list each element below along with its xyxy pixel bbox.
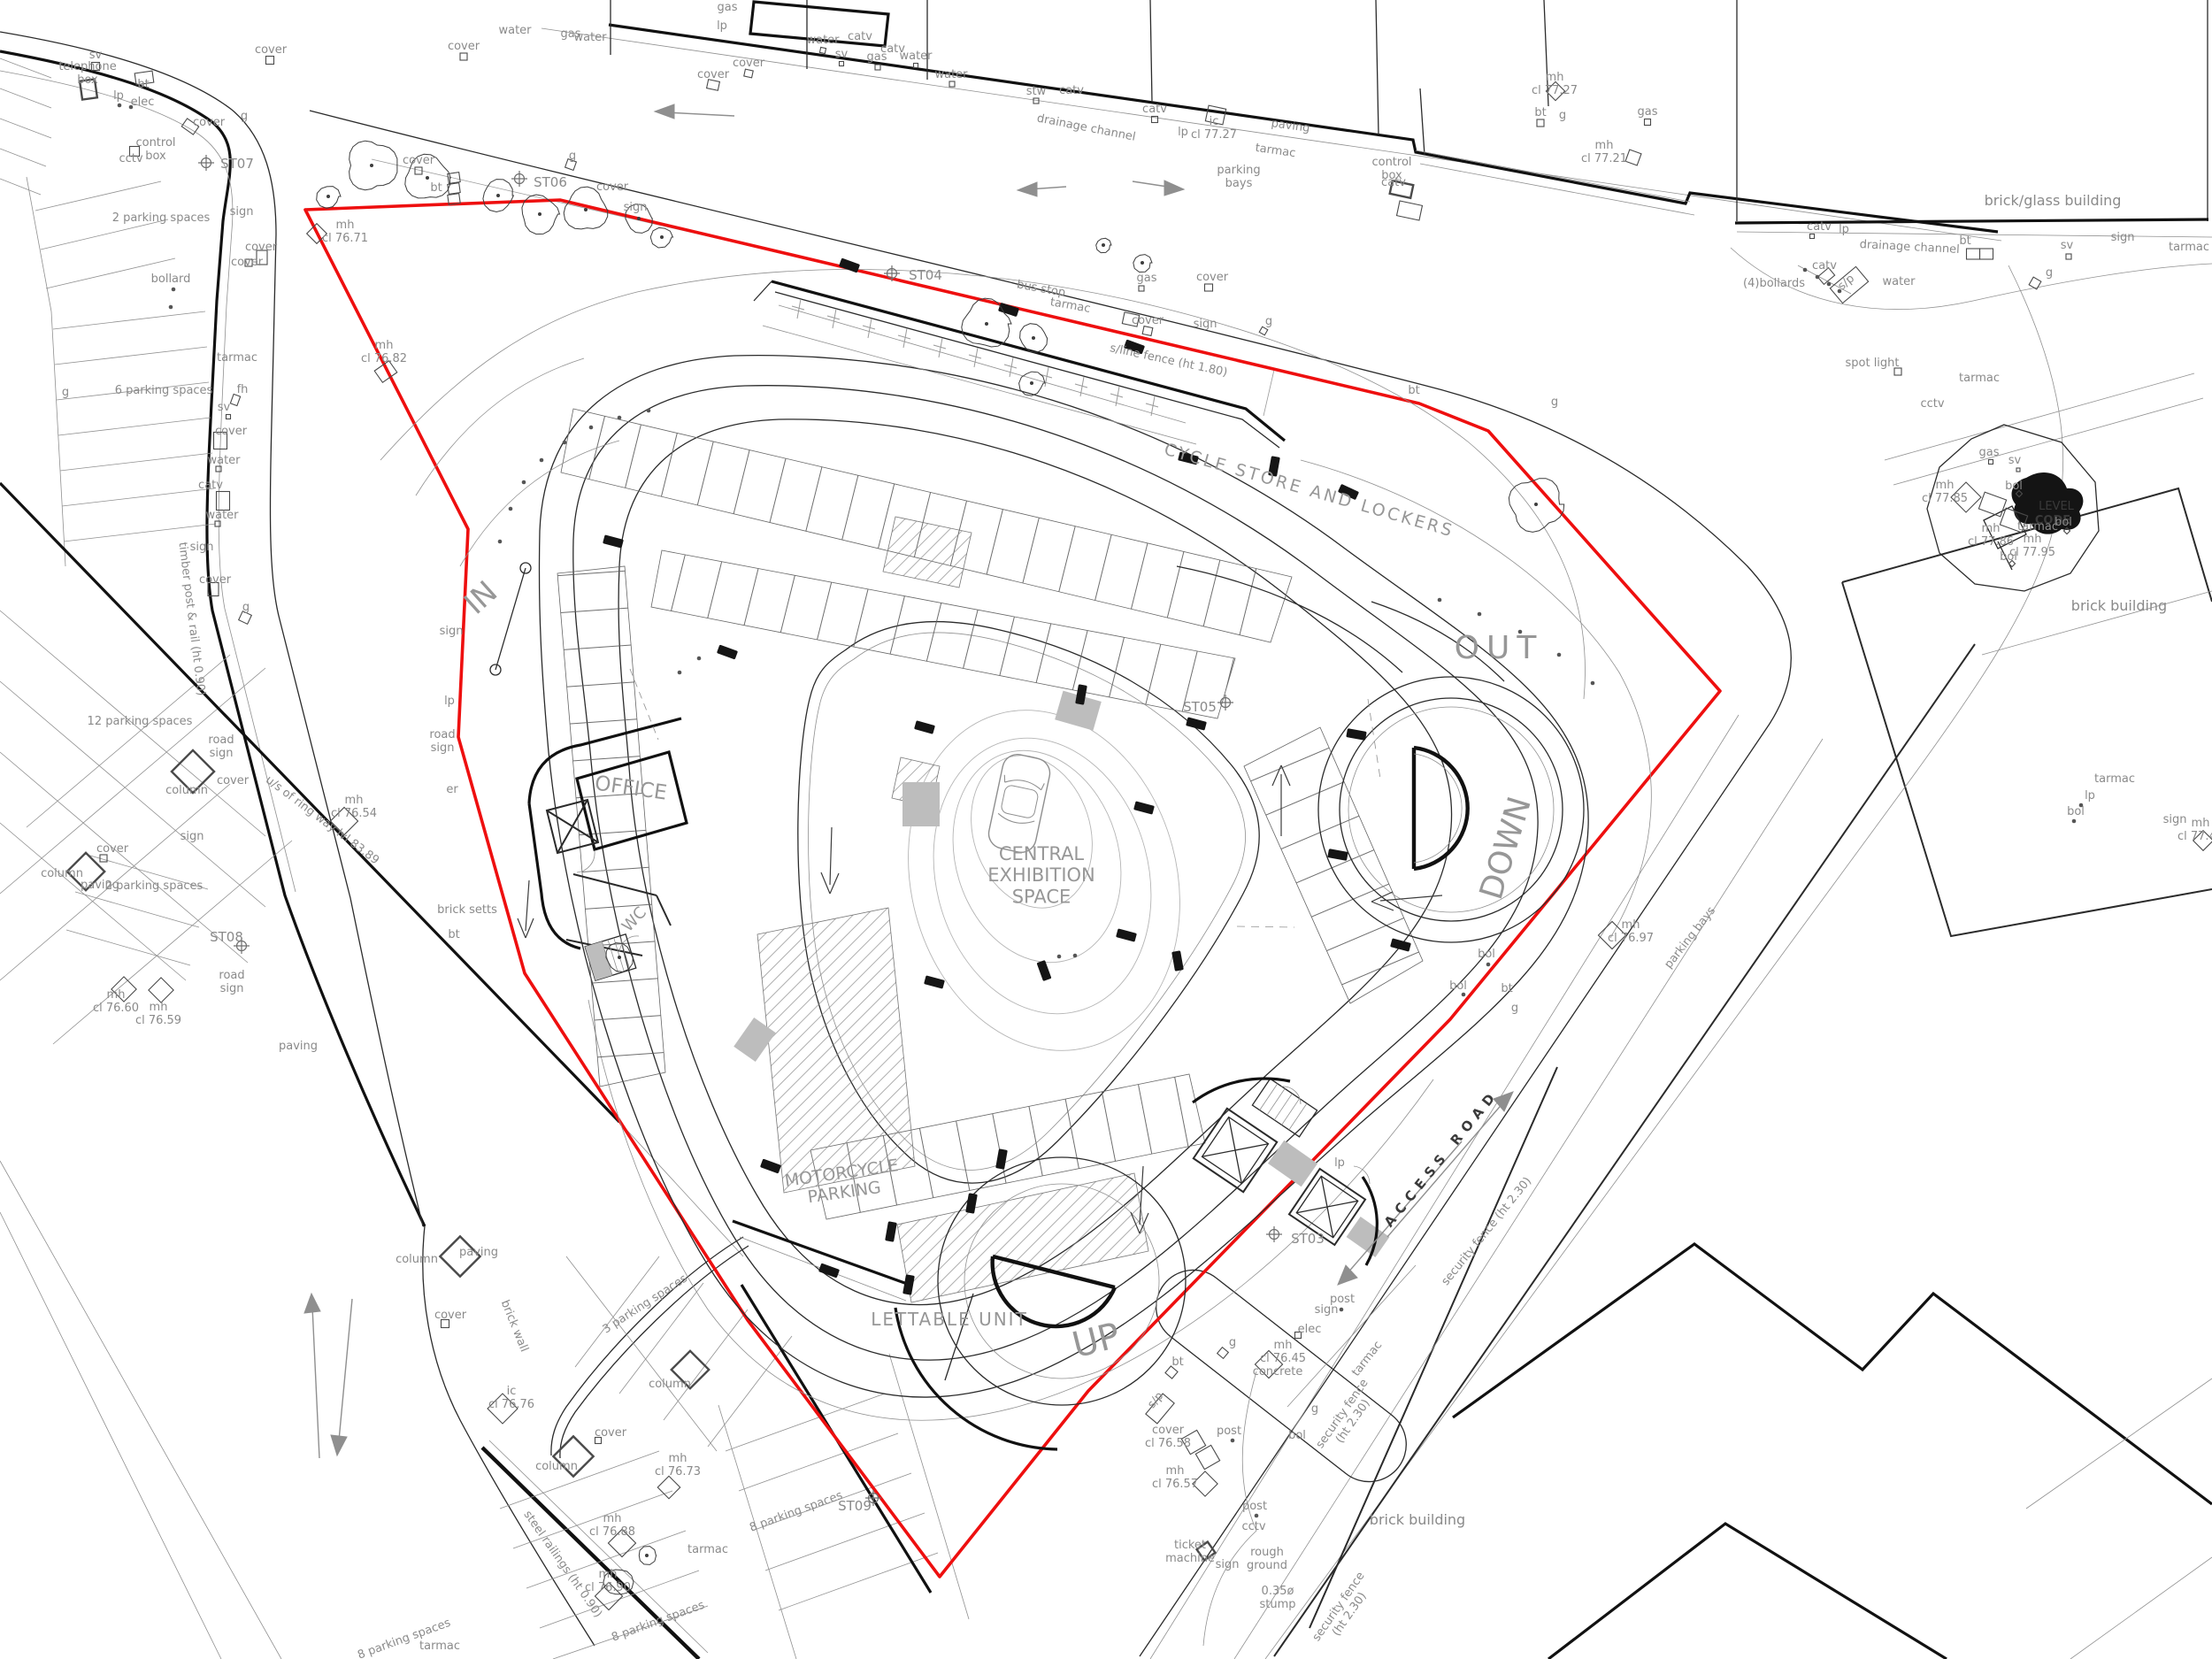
survey-dot — [1827, 282, 1832, 287]
map-label-bol: bol — [2005, 480, 2023, 493]
map-label-water: water — [934, 68, 968, 81]
utility-box — [1810, 234, 1815, 239]
survey-station-st06: ST06 — [511, 171, 567, 190]
map-label-access-road: ACCESS ROAD — [1381, 1086, 1502, 1230]
map-label-paving: paving — [1271, 117, 1311, 135]
site-plan-page: ST03ST04ST05ST06ST07ST08ST09 svtelephone… — [0, 0, 2212, 1659]
utility-box — [744, 69, 753, 78]
map-label-mh-cl-76-60: mhcl 76.60 — [93, 988, 139, 1015]
map-label-bt: bt — [137, 78, 149, 91]
map-label-brick-building: brick building — [1370, 1511, 1465, 1528]
map-label-lp: lp — [1334, 1156, 1345, 1170]
map-label-cover: cover — [231, 256, 264, 269]
survey-dot — [498, 540, 503, 544]
labels-layer: svtelephoneboxbtlpeleccovercovergcontrol… — [41, 1, 2212, 1659]
map-label-cover: cover — [217, 774, 250, 787]
map-label-brick-wall: brick wall — [498, 1298, 531, 1354]
left-road-kerb — [0, 51, 425, 1226]
map-label-g: g — [1559, 109, 1566, 122]
survey-dot — [1057, 955, 1062, 959]
station-label-st08: ST08 — [210, 929, 243, 945]
map-label-mh-cl-76-71: mhcl 76.71 — [322, 219, 368, 245]
map-label-sign: sign — [1315, 1303, 1339, 1317]
map-label-cover: cover — [448, 40, 480, 53]
survey-dot — [647, 409, 651, 413]
utility-box — [149, 978, 173, 1002]
map-label-down: DOWN — [1473, 793, 1539, 903]
map-label-column: column — [165, 784, 208, 797]
survey-dot — [1438, 598, 1442, 603]
map-label-sv: sv — [835, 48, 849, 61]
map-label-catv: catv — [1059, 84, 1084, 97]
map-label-g: g — [1265, 315, 1272, 328]
tree — [349, 141, 397, 190]
map-label-2-parking-spaces: 2 parking spaces — [112, 211, 211, 225]
map-label-2-parking-spaces: 2 parking spaces — [105, 879, 204, 893]
survey-station-st08: ST08 — [210, 929, 250, 954]
tree — [483, 180, 514, 212]
deck-marker — [818, 1263, 840, 1279]
map-label-sign: sign — [2111, 231, 2135, 244]
deck-marker — [717, 645, 738, 660]
map-label-bollard: bollard — [151, 273, 191, 286]
deck-marker — [1037, 960, 1052, 981]
utility-box — [2066, 254, 2071, 259]
map-label-bt: bt — [1408, 384, 1419, 397]
map-label-g: g — [2046, 266, 2053, 280]
map-label-mh-cl-76-88: mhcl 76.88 — [589, 1512, 635, 1539]
deck-marker — [1346, 728, 1366, 741]
deck-marker — [1116, 928, 1137, 941]
map-label-tarmac: tarmac — [1959, 372, 2000, 385]
utility-box — [448, 183, 460, 195]
map-label-sign: sign — [180, 830, 204, 843]
map-label-drainage-channel: drainage channel — [1859, 238, 1960, 257]
map-label-cover: cover — [434, 1309, 467, 1322]
map-label-mh-cl-76-82: mhcl 76.82 — [361, 339, 407, 365]
station-label-st05: ST05 — [1183, 699, 1217, 715]
corner-hatch — [0, 58, 51, 195]
map-label-tarmac: tarmac — [1049, 296, 1092, 316]
map-label-tarmac: tarmac — [419, 1640, 460, 1653]
map-label-cover: cover — [245, 241, 278, 254]
survey-dot — [118, 104, 122, 108]
survey-station-st04: ST04 — [884, 265, 942, 283]
map-label-g: g — [1551, 396, 1558, 409]
map-label-water: water — [207, 454, 241, 467]
utility-box — [1217, 1348, 1229, 1359]
map-label-tarmac: tarmac — [2017, 520, 2058, 534]
map-label-cover: cover — [733, 57, 765, 70]
station-label-st04: ST04 — [909, 267, 942, 283]
map-label-sign: sign — [440, 625, 464, 638]
map-label-sign: sign — [1216, 1558, 1240, 1571]
map-label-water: water — [498, 24, 532, 37]
map-label-lp: lp — [113, 89, 124, 103]
map-label-gas: gas — [1137, 272, 1157, 285]
car-glyph — [986, 752, 1052, 856]
map-label-column: column — [535, 1460, 578, 1473]
utility-box — [1205, 284, 1213, 291]
utility-box — [1537, 119, 1544, 127]
map-label-cover-cl-76-58: covercl 76.58 — [1145, 1424, 1191, 1450]
map-label-bol: bol — [1288, 1429, 1306, 1442]
map-label-0-35-stump: 0.35østump — [1259, 1585, 1295, 1611]
parking-bay-bands — [557, 409, 1423, 1219]
map-label-g: g — [1229, 1336, 1236, 1349]
tree — [317, 187, 341, 209]
utility-box — [1978, 492, 2006, 517]
map-label-tarmac: tarmac — [1255, 142, 1297, 160]
topright-building-sides — [1737, 0, 2208, 221]
survey-station-st07: ST07 — [198, 155, 254, 172]
map-label-paving: paving — [279, 1040, 318, 1053]
map-label-mh-cl-76-54: mhcl 76.54 — [331, 794, 377, 820]
utility-box — [1645, 119, 1651, 126]
map-label-gas: gas — [1638, 105, 1658, 119]
map-label-catv: catv — [1142, 103, 1167, 116]
utility-box — [1989, 460, 1993, 465]
survey-dot — [522, 480, 526, 485]
utility-box — [840, 62, 844, 66]
map-label-bol: bol — [2000, 550, 2017, 564]
map-label-mh-cl-77-85: mhcl 77.85 — [1922, 479, 1968, 505]
utility-box — [1980, 249, 1993, 259]
map-label-catv: catv — [848, 30, 872, 43]
map-label-water: water — [806, 34, 840, 47]
map-label-mh-cl-77-21: mhcl 77.21 — [1581, 139, 1627, 165]
map-label-post: post — [1242, 1500, 1267, 1513]
map-label-out: OUT — [1455, 630, 1544, 666]
map-label-er: er — [446, 783, 458, 796]
deck-marker — [760, 1159, 781, 1174]
map-label-elec: elec — [1298, 1323, 1322, 1336]
map-label-catv: catv — [1812, 259, 1837, 273]
map-label-bol: bol — [2067, 805, 2085, 818]
map-label-cover: cover — [199, 573, 232, 587]
map-label-sign: sign — [230, 205, 254, 219]
map-label-g: g — [241, 110, 248, 123]
map-label-road-sign: roadsign — [219, 969, 244, 995]
map-label-bt: bt — [448, 928, 459, 941]
map-label-cover: cover — [96, 842, 129, 856]
map-label-brick-glass-building: brick/glass building — [1985, 192, 2122, 209]
survey-dot — [1231, 1439, 1235, 1443]
map-label-drainage-channel: drainage channel — [1036, 111, 1137, 143]
ring-way-cont — [619, 1122, 743, 1256]
left-road-edge — [0, 32, 423, 1226]
map-label-cover: cover — [193, 116, 226, 129]
deck-marker — [839, 258, 860, 273]
map-label-column: column — [649, 1378, 691, 1391]
map-label-gas: gas — [1979, 446, 2000, 459]
map-label-mh-cl-76-90: mhcl 76.90 — [585, 1568, 631, 1594]
deck-marker — [924, 975, 945, 988]
map-label-level: LEVEL — [2039, 500, 2075, 513]
map-label-cover: cover — [403, 154, 435, 167]
survey-dot — [1340, 1308, 1344, 1312]
deck-marker — [885, 1221, 897, 1241]
map-label-paving: paving — [459, 1246, 498, 1259]
map-label-mh-cl-77-27: mhcl 77.27 — [1532, 71, 1578, 97]
map-label-water: water — [573, 31, 607, 44]
map-label-gas: gas — [867, 50, 887, 64]
survey-dot — [509, 507, 513, 511]
map-label-s-p: s/p — [1145, 1389, 1166, 1411]
map-label-mh-cl-76-57: mhcl 76.57 — [1152, 1464, 1198, 1491]
utility-box — [819, 47, 826, 53]
map-label-6-parking-spaces: 6 parking spaces — [115, 384, 213, 397]
station-label-st06: ST06 — [534, 174, 567, 190]
survey-dot — [563, 441, 567, 445]
map-label-column: column — [41, 867, 83, 880]
survey-dot — [1557, 653, 1562, 657]
station-label-st03: ST03 — [1291, 1231, 1325, 1247]
utility-box — [2016, 468, 2020, 472]
map-label-g: g — [242, 601, 250, 614]
survey-dot — [2072, 819, 2077, 824]
utility-box — [875, 65, 880, 70]
tree — [639, 1547, 656, 1565]
survey-dot — [589, 426, 594, 430]
map-label-gas: gas — [718, 1, 738, 14]
map-label-cctv: cctv — [1241, 1520, 1265, 1533]
map-label-12-parking-spaces: 12 parking spaces — [88, 715, 193, 728]
survey-dot — [618, 416, 622, 420]
map-label-cover: cover — [697, 68, 730, 81]
map-label-tarmac: tarmac — [217, 351, 257, 365]
utility-box — [1139, 286, 1144, 291]
survey-dot — [1255, 1514, 1259, 1518]
map-label-cycle-store-and-lockers: CYCLE STORE AND LOCKERS — [1162, 440, 1456, 541]
map-label-sign: sign — [190, 541, 214, 554]
survey-dot — [1486, 963, 1491, 967]
deck-marker — [914, 720, 935, 734]
map-label-sign: sign — [624, 201, 648, 214]
map-label-catv: catv — [198, 479, 223, 492]
map-label-telephone-box: telephonebox — [58, 60, 116, 87]
survey-dot — [1462, 993, 1466, 997]
utility-box — [1625, 150, 1641, 165]
map-label-column: column — [396, 1253, 438, 1266]
map-label-road-sign: roadsign — [208, 733, 234, 760]
map-label-bt: bt — [1171, 1356, 1183, 1369]
deck-marker — [1171, 950, 1184, 971]
map-label-bt: bt — [1501, 982, 1512, 995]
survey-dot — [172, 288, 176, 292]
utility-box — [1142, 326, 1153, 336]
utility-box — [1967, 249, 1980, 259]
map-label-stw: stw — [1026, 85, 1047, 98]
survey-dot — [1073, 954, 1078, 958]
station-label-st07: ST07 — [220, 156, 254, 172]
site-plan-drawing: ST03ST04ST05ST06ST07ST08ST09 svtelephone… — [0, 0, 2212, 1659]
map-label-security-fence-ht-2-30: security fence(ht 2.30) — [1314, 1377, 1382, 1459]
map-label-mh-cl-76-59: mhcl 76.59 — [135, 1001, 181, 1027]
utility-box — [227, 415, 231, 419]
map-label-water: water — [899, 50, 933, 63]
survey-dot — [169, 305, 173, 310]
map-label-spot-light: spot light — [1845, 357, 1899, 370]
map-label-catv: catv — [1807, 220, 1832, 234]
map-label-lp: lp — [2085, 789, 2095, 803]
bottomright-strips — [2026, 1379, 2212, 1659]
map-label-ic-cl-77-27: iccl 77.27 — [1191, 115, 1237, 142]
survey-dots-layer — [118, 104, 2084, 1518]
map-label-tarmac: tarmac — [1349, 1339, 1385, 1379]
map-label-ic-cl-76-76: iccl 76.76 — [488, 1385, 534, 1411]
map-label-bt: bt — [1534, 106, 1546, 119]
tree — [650, 227, 672, 248]
bottomright-brick-building — [1453, 1244, 2212, 1659]
map-label-tarmac: tarmac — [2169, 241, 2209, 254]
utility-box — [266, 57, 274, 65]
up-spiral — [733, 1157, 1186, 1449]
map-label-mh-cl-76-97: mhcl 76.97 — [1608, 918, 1654, 945]
map-label-cover: cover — [595, 1426, 627, 1440]
map-label-concrete: concrete — [1253, 1365, 1303, 1379]
map-label-lp: lp — [1839, 223, 1849, 236]
map-label-4-bollards: (4)bollards — [1743, 277, 1805, 290]
utility-box — [1397, 201, 1423, 220]
map-label-cover: cover — [1196, 271, 1229, 284]
map-label-cover: cover — [1132, 314, 1164, 327]
tree — [1019, 372, 1045, 396]
utility-box — [460, 53, 467, 60]
survey-dot — [1803, 268, 1808, 273]
map-label-brick-setts: brick setts — [437, 903, 497, 917]
map-label-mh-cl-77-86: mhcl 77.86 — [1968, 522, 2014, 549]
utility-box — [100, 855, 107, 862]
map-label-central-exhibition-space: CENTRALEXHIBITIONSPACE — [987, 843, 1095, 907]
map-label-brick-building: brick building — [2071, 597, 2167, 614]
map-label-rough-ground: roughground — [1247, 1546, 1287, 1572]
tree — [1096, 238, 1111, 252]
utility-box — [217, 492, 230, 511]
survey-dot — [678, 671, 682, 675]
map-label-cover: cover — [596, 180, 629, 194]
survey-dot — [1591, 681, 1595, 686]
map-label-tarmac: tarmac — [2094, 772, 2135, 786]
survey-dot — [1816, 275, 1820, 280]
survey-dot — [540, 458, 544, 463]
map-label-bt: bt — [430, 181, 442, 195]
map-label-security-fence-ht-2-30: security fence(ht 2.30) — [1310, 1570, 1379, 1652]
deck-marker — [603, 534, 624, 548]
map-label-3-parking-spaces: 3 parking spaces — [601, 1272, 690, 1337]
utility-box — [949, 81, 955, 87]
map-label-lp: lp — [444, 695, 455, 708]
survey-dot — [697, 657, 702, 661]
map-label-water: water — [205, 509, 239, 522]
map-label-water: water — [1882, 275, 1916, 288]
map-label-g: g — [1511, 1002, 1518, 1015]
map-label-sign: sign — [2163, 813, 2187, 826]
map-label-lettable-unit: LETTABLE UNIT — [871, 1309, 1028, 1330]
map-label-tarmac: tarmac — [687, 1543, 728, 1556]
map-label-post: post — [1217, 1425, 1241, 1438]
map-label-sv: sv — [2008, 454, 2022, 467]
map-label-lp: lp — [1178, 126, 1188, 139]
tree — [1133, 255, 1152, 273]
map-label-g: g — [62, 386, 69, 399]
map-label-parking-bays: parking bays — [1662, 904, 1718, 972]
map-label-g: g — [1311, 1402, 1318, 1416]
map-label-bt: bt — [1959, 234, 1970, 248]
map-label-bol: bol — [1449, 979, 1467, 993]
map-label-elec: elec — [131, 96, 155, 109]
map-label-parking-bays: parkingbays — [1217, 164, 1260, 190]
utility-box — [914, 64, 918, 68]
survey-station-st03: ST03 — [1266, 1226, 1325, 1247]
map-label-fh: fh — [237, 383, 249, 396]
map-label-cctv: cctv — [1920, 397, 1944, 411]
map-label-8-parking-spaces: 8 parking spaces — [748, 1489, 844, 1535]
bottom-left-road — [0, 1161, 281, 1659]
map-label-timber-post-rail-ht-0-90: timber post & rail (ht 0.90) — [175, 541, 207, 696]
map-label-g: g — [569, 150, 576, 163]
survey-dot — [1478, 612, 1482, 617]
map-label-cover: cover — [255, 43, 288, 57]
map-label-sv: sv — [218, 401, 231, 414]
deck-marker — [1133, 801, 1155, 814]
map-label-road-sign: roadsign — [429, 728, 455, 755]
steel-railings — [482, 1448, 699, 1659]
map-label-sv: sv — [2061, 239, 2074, 252]
map-label-cover: cover — [215, 425, 248, 438]
map-label-sign: sign — [1194, 318, 1217, 331]
map-label-mh-cl-76-73: mhcl 76.73 — [655, 1452, 701, 1479]
map-label-cctv: cctv — [119, 152, 142, 165]
map-label-catv: catv — [1381, 176, 1406, 189]
map-label-bol: bol — [1478, 948, 1495, 961]
map-label-s-line-fence-ht-1-80: s/line fence (ht 1.80) — [1109, 342, 1229, 380]
map-label-lp: lp — [717, 19, 727, 33]
